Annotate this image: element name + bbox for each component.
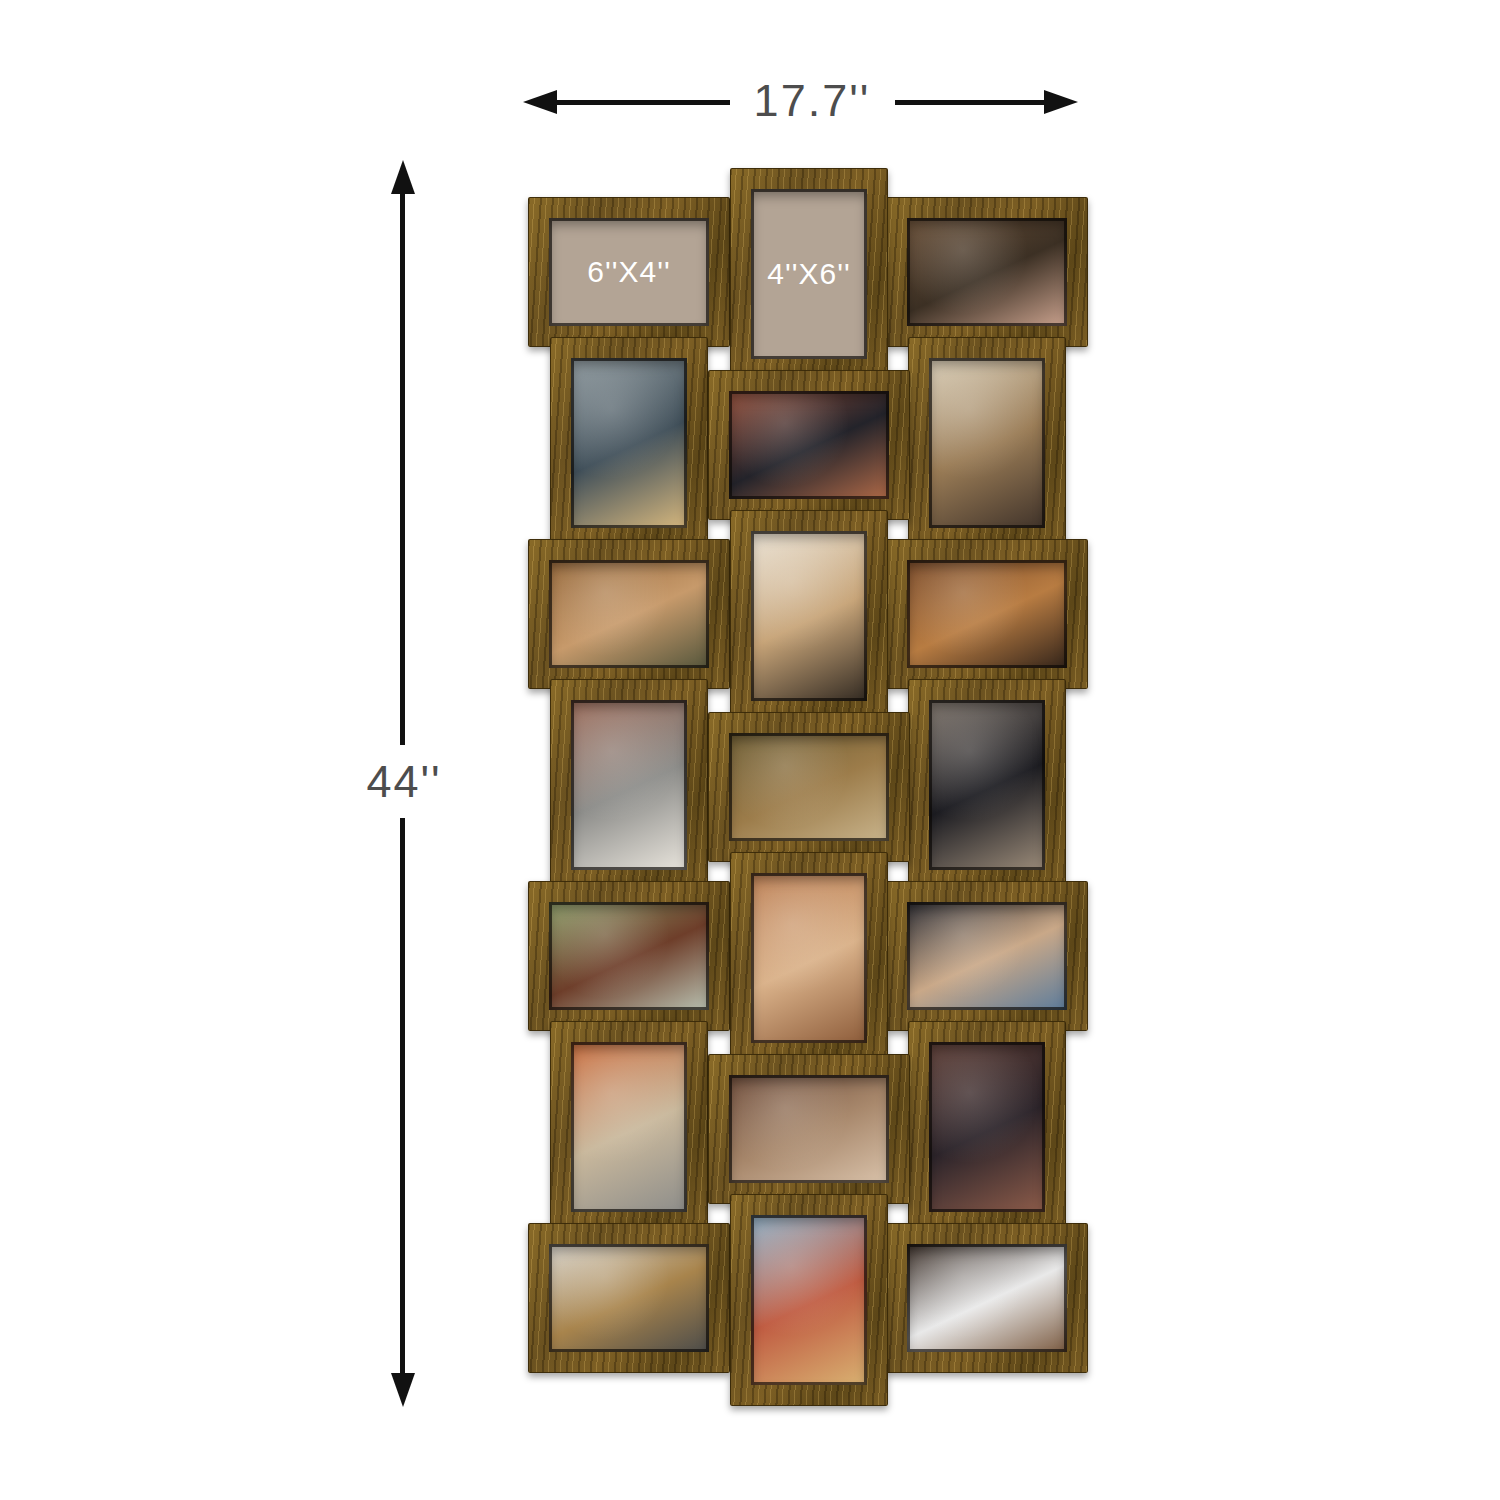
photo-frame-r4c3 xyxy=(908,679,1066,891)
photo-frame-r3c2 xyxy=(730,510,888,722)
photo-frame-r4c2 xyxy=(708,712,910,862)
photo xyxy=(907,902,1067,1010)
photo xyxy=(571,358,687,528)
photo-frame-r7c3 xyxy=(886,1223,1088,1373)
photo xyxy=(729,391,889,499)
collage-picture-frame: 6''X4''4''X6'' xyxy=(0,0,1500,1500)
photo xyxy=(729,1075,889,1183)
photo-frame-r2c2 xyxy=(708,370,910,520)
photo-frame-r5c3 xyxy=(886,881,1088,1031)
photo-frame-r6c1 xyxy=(550,1021,708,1233)
photo-frame-r5c2 xyxy=(730,852,888,1064)
photo xyxy=(751,1215,867,1385)
photo xyxy=(571,700,687,870)
photo-frame-r3c3 xyxy=(886,539,1088,689)
photo-frame-r1c2: 4''X6'' xyxy=(730,168,888,380)
photo xyxy=(929,1042,1045,1212)
photo xyxy=(907,1244,1067,1352)
photo xyxy=(751,531,867,701)
photo-frame-r2c3 xyxy=(908,337,1066,549)
photo xyxy=(907,218,1067,326)
photo xyxy=(907,560,1067,668)
photo-frame-r6c3 xyxy=(908,1021,1066,1233)
size-placeholder-label: 6''X4'' xyxy=(587,255,670,289)
photo-frame-r2c1 xyxy=(550,337,708,549)
photo-frame-r1c1: 6''X4'' xyxy=(528,197,730,347)
photo xyxy=(549,560,709,668)
photo xyxy=(929,358,1045,528)
photo xyxy=(549,902,709,1010)
photo xyxy=(751,873,867,1043)
photo-frame-r7c1 xyxy=(528,1223,730,1373)
photo xyxy=(549,1244,709,1352)
photo-frame-r4c1 xyxy=(550,679,708,891)
size-placeholder-label: 4''X6'' xyxy=(767,257,850,291)
photo-frame-r1c3 xyxy=(886,197,1088,347)
photo-frame-r7c2 xyxy=(730,1194,888,1406)
size-placeholder: 6''X4'' xyxy=(549,218,709,326)
product-image-canvas: 17.7'' 44'' 6''X4''4''X6'' xyxy=(0,0,1500,1500)
photo-frame-r6c2 xyxy=(708,1054,910,1204)
photo xyxy=(571,1042,687,1212)
size-placeholder: 4''X6'' xyxy=(751,189,867,359)
photo-frame-r5c1 xyxy=(528,881,730,1031)
photo xyxy=(929,700,1045,870)
photo xyxy=(729,733,889,841)
photo-frame-r3c1 xyxy=(528,539,730,689)
